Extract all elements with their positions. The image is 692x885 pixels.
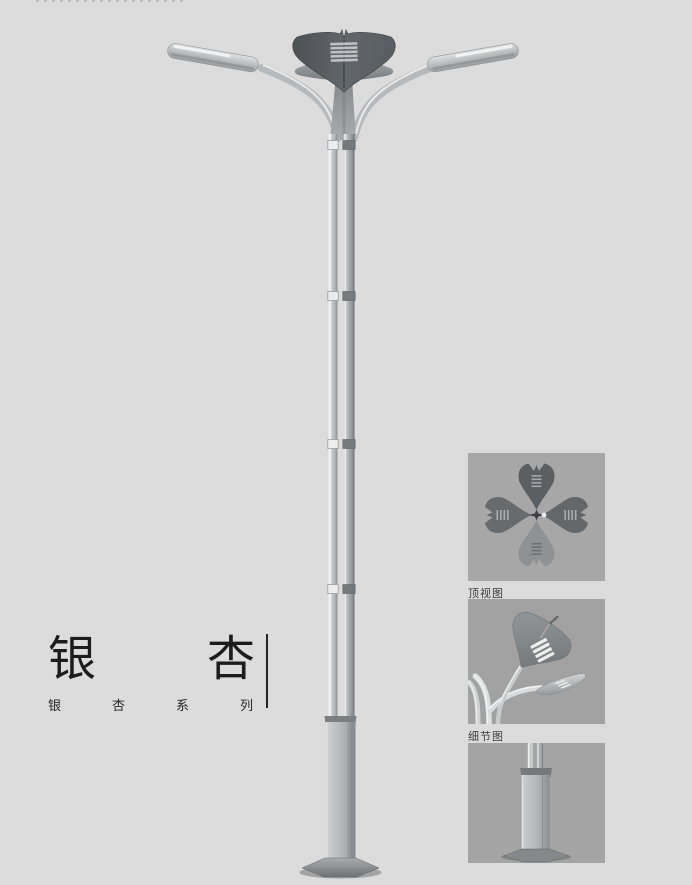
base-render — [468, 743, 605, 863]
thumbnail-top-view: 顶视图 — [468, 453, 605, 601]
top-view-render — [468, 453, 605, 581]
title-block: 银 杏 银 杏 系 列 — [48, 636, 267, 714]
series-subtitle: 银 杏 系 列 — [48, 695, 253, 714]
subtitle-char: 列 — [240, 695, 253, 714]
top-view-image — [468, 453, 605, 581]
thumbnail-base-view — [468, 743, 605, 863]
thumbnail-detail-view: 细节图 — [468, 599, 605, 744]
ginkgo-crown — [293, 30, 396, 92]
detail-image — [468, 599, 605, 724]
base-column — [325, 716, 357, 864]
subtitle-char: 系 — [176, 695, 189, 714]
title-divider-line — [266, 634, 268, 708]
base-plate — [300, 858, 382, 879]
right-lamp-head — [426, 42, 519, 73]
subtitle-char: 杏 — [112, 695, 125, 714]
page-title: 银 杏 — [48, 636, 255, 685]
title-char: 银 — [48, 636, 96, 685]
left-lamp-head — [166, 42, 259, 73]
base-image — [468, 743, 605, 863]
subtitle-char: 银 — [48, 695, 61, 714]
detail-label: 细节图 — [468, 728, 605, 744]
detail-render — [468, 599, 605, 724]
title-char: 杏 — [207, 636, 255, 685]
twin-tube-pole — [329, 134, 355, 720]
